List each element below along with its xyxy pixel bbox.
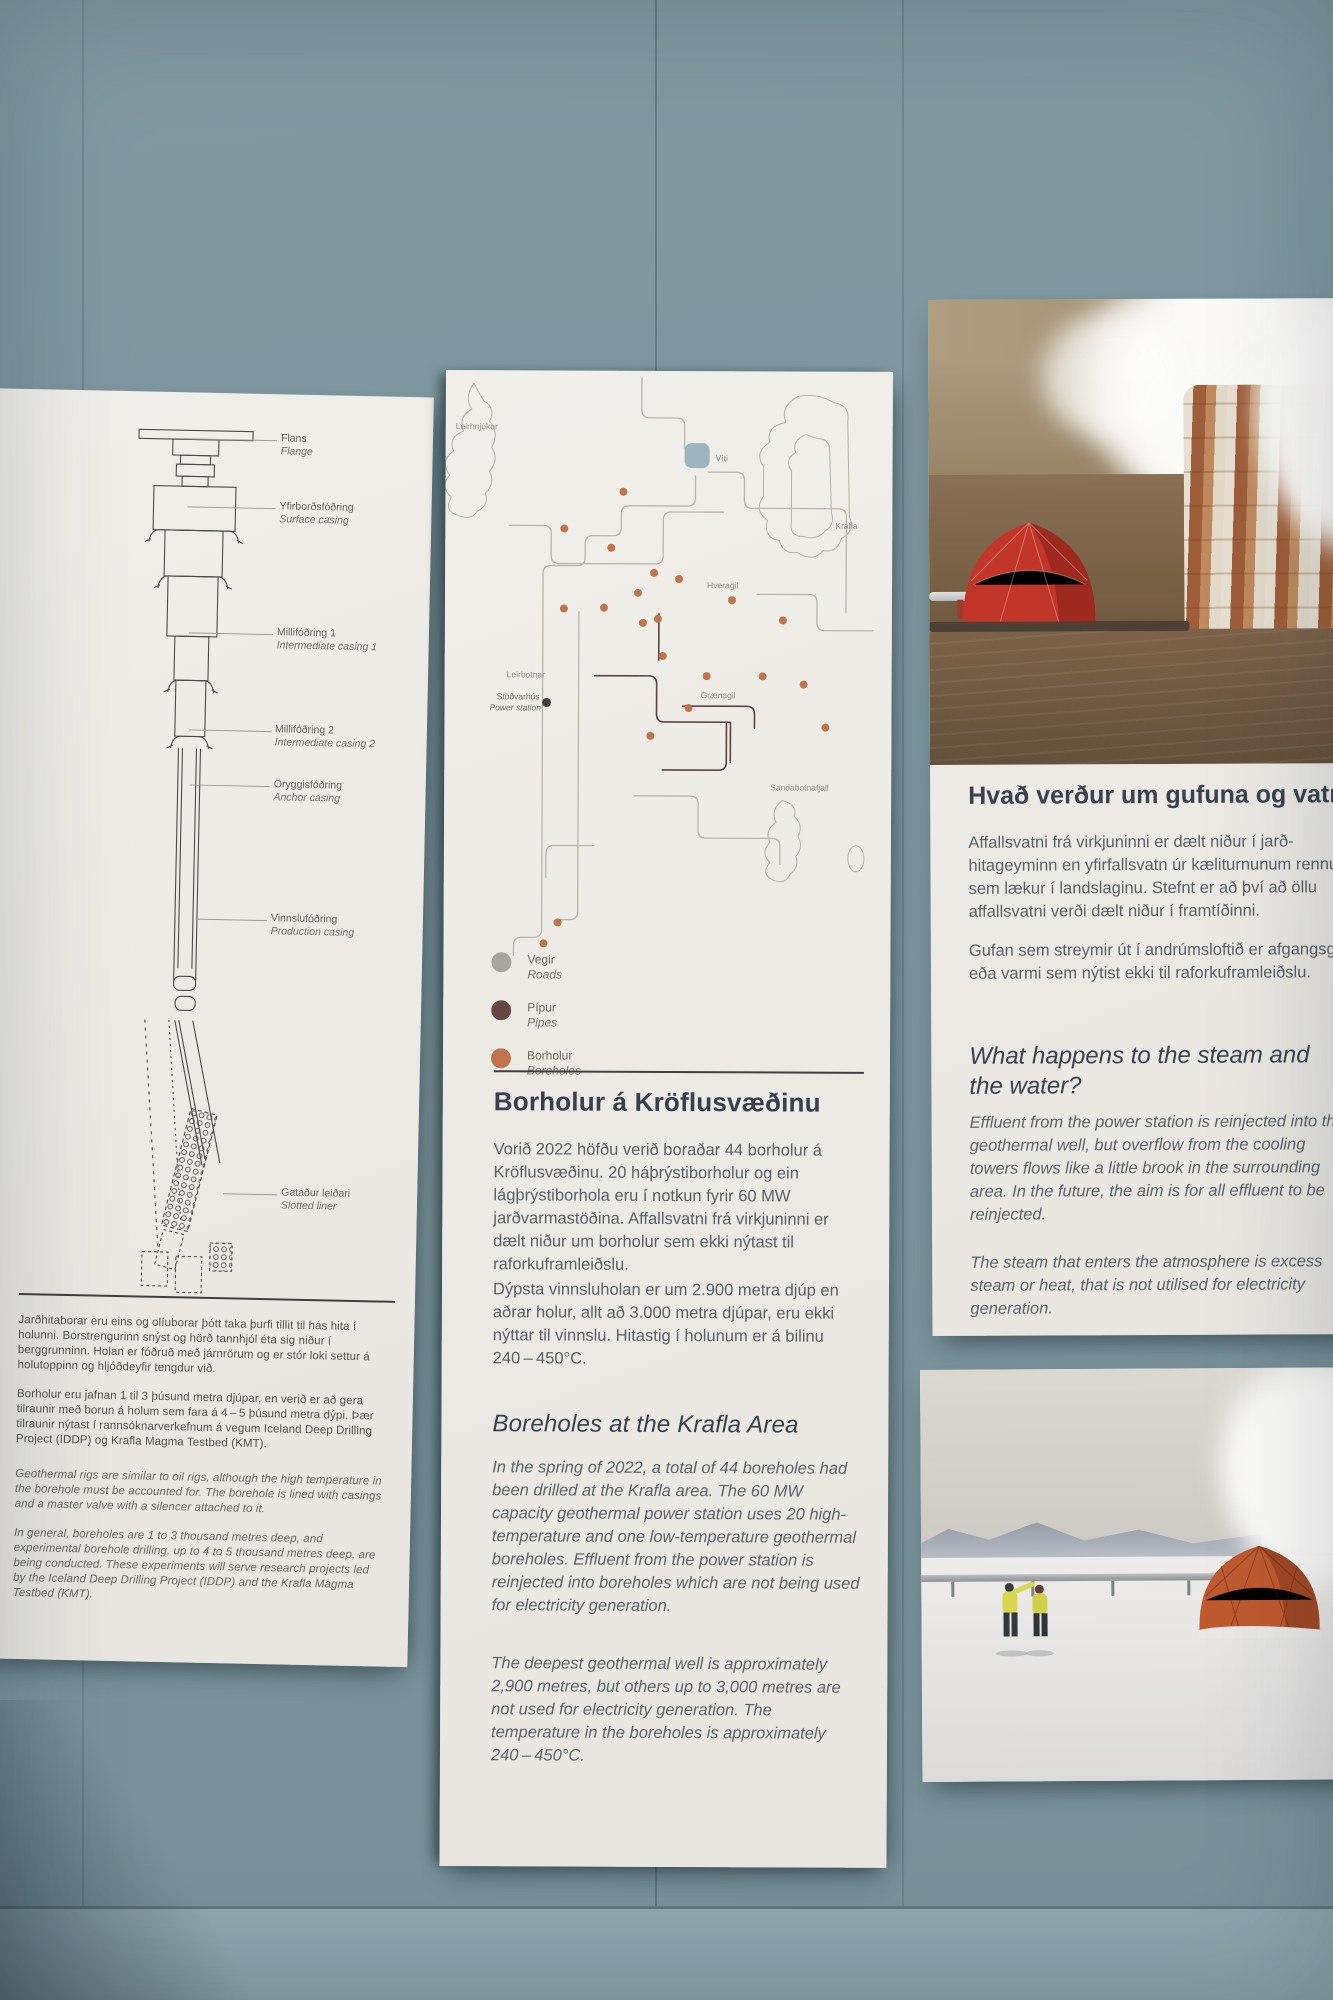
- diagram-label-anchor-casing: Öryggisfóðring Anchor casing: [273, 778, 342, 805]
- steam-plume: [1038, 309, 1189, 440]
- label-en: Slotted liner: [281, 1199, 350, 1213]
- ground-pipe: [929, 621, 1189, 632]
- icelandic-paragraph: Gufan sem streymir út í andrúmsloftið er…: [969, 938, 1333, 986]
- diagram-label-intermediate-casing-1: Millifóðring 1 Intermediate casing 1: [277, 626, 378, 654]
- label-en: Production casing: [271, 925, 355, 940]
- map-label-graenagil: Grænagil: [701, 690, 736, 700]
- krafla-boreholes-panel: Leirhnjúkur Víti Krafla Hveragil Leirbot…: [439, 370, 893, 1868]
- roads-legend-dot-icon: [491, 952, 511, 972]
- boreholes-legend-dot-icon: [491, 1048, 511, 1068]
- english-paragraph: The steam that enters the atmosphere is …: [970, 1250, 1333, 1321]
- map-label-stodvarhus: Stöðvarhús: [497, 691, 540, 701]
- borehole-diagram-panel: Flans Flange Yfirborðsfóðring Surface ca…: [0, 388, 434, 1667]
- english-paragraph: In the spring of 2022, a total of 44 bor…: [492, 1456, 861, 1619]
- english-paragraph: Effluent from the power station is reinj…: [970, 1110, 1333, 1227]
- power-station-marker: [542, 698, 551, 707]
- wall-corner-shadow: [0, 1700, 270, 2000]
- map-label-leirbotnar: Leirbotnar: [507, 669, 545, 679]
- viti-crater-marker: [685, 443, 710, 468]
- icelandic-paragraph: Affallsvatni frá virkjuninni er dælt nið…: [968, 830, 1333, 924]
- label-en: Flange: [281, 445, 313, 459]
- legend-label-en: Pipes: [527, 1015, 557, 1030]
- legend-label-is: Vegir: [527, 952, 562, 967]
- left-panel-icelandic-text: Jarðhitaborar eru eins og olíuborar þótt…: [16, 1313, 395, 1469]
- diagram-label-slotted-liner: Gataður leiðari Slotted liner: [281, 1186, 350, 1213]
- label-en: Intermediate casing 1: [277, 639, 378, 654]
- guardrail-post: [1187, 1580, 1190, 1595]
- steam-water-title-english: What happens to the steam and the water?: [969, 1040, 1319, 1102]
- diagram-label-surface-casing: Yfirborðsfóðring Surface casing: [279, 500, 354, 528]
- legend-label-is: Borholur: [527, 1048, 581, 1063]
- guardrail-post: [1111, 1581, 1114, 1596]
- winter-photo-panel: [920, 1367, 1333, 1782]
- map-label-krafla: Krafla: [835, 521, 858, 531]
- paragraph: Jarðhitaborar eru eins og olíuborar þótt…: [17, 1313, 394, 1381]
- map-label-leirhnjukur: Leirhnjúkur: [456, 421, 498, 431]
- legend-item-pipes: Pípur Pipes: [491, 1000, 557, 1030]
- borehole-casing-diagram: [83, 419, 291, 1303]
- paragraph: Borholur eru jafnan 1 til 3 þúsund metra…: [16, 1387, 393, 1455]
- legend-label-en: Roads: [527, 967, 562, 982]
- label-en: Surface casing: [279, 513, 353, 528]
- exhibition-wall: Flans Flange Yfirborðsfóðring Surface ca…: [0, 0, 1333, 2000]
- legend-label-is: Pípur: [527, 1000, 557, 1015]
- paragraph: In general, boreholes are 1 to 3 thousan…: [13, 1526, 384, 1609]
- foreground-gravel: [929, 628, 1333, 765]
- krafla-borehole-map: Leirhnjúkur Víti Krafla Hveragil Leirbot…: [443, 375, 893, 977]
- pipes-legend-dot-icon: [491, 1000, 511, 1020]
- diagram-label-flange: Flans Flange: [281, 432, 314, 459]
- section-title-icelandic: Borholur á Kröflusvæðinu: [494, 1086, 821, 1118]
- orange-dome: [1193, 1518, 1326, 1639]
- left-panel-english-text: Geothermal rigs are similar to oil rigs,…: [12, 1467, 385, 1623]
- english-paragraph: The deepest geothermal well is approxima…: [491, 1652, 859, 1769]
- winter-scene-photo: [920, 1367, 1333, 1782]
- wall-seam: [902, 0, 904, 2000]
- section-title-english: Boreholes at the Krafla Area: [492, 1410, 798, 1439]
- workers-figures: [987, 1579, 1077, 1660]
- label-en: Intermediate casing 2: [274, 736, 375, 751]
- legend-item-boreholes: Borholur Boreholes: [491, 1048, 581, 1078]
- steam-and-water-panel: Hvað verður um gufuna og vatnið? Affalls…: [928, 298, 1333, 1336]
- diagram-label-intermediate-casing-2: Millifóðring 2 Intermediate casing 2: [274, 723, 375, 751]
- map-label-hveragil: Hveragil: [707, 580, 738, 590]
- legend-item-roads: Vegir Roads: [491, 952, 562, 982]
- label-en: Anchor casing: [273, 791, 342, 805]
- label-is: Flans: [281, 432, 313, 446]
- icelandic-paragraph: Vorið 2022 höfðu verið boraðar 44 borhol…: [493, 1138, 866, 1278]
- paragraph: Geothermal rigs are similar to oil rigs,…: [14, 1467, 385, 1520]
- geothermal-station-photo: [928, 298, 1333, 765]
- guardrail-post: [951, 1582, 954, 1597]
- map-label-sandabotnafjall: Sandabotnafjall: [770, 782, 829, 792]
- steam-water-title-icelandic: Hvað verður um gufuna og vatnið?: [968, 780, 1333, 811]
- icelandic-paragraph: Dýpsta vinnsluholan er um 2.900 metra dj…: [493, 1278, 865, 1372]
- red-dome: [959, 484, 1100, 627]
- map-label-power-station: Power station: [490, 702, 542, 712]
- map-label-viti: Víti: [716, 453, 728, 463]
- diagram-label-production-casing: Vinnslufóðring Production casing: [271, 912, 355, 940]
